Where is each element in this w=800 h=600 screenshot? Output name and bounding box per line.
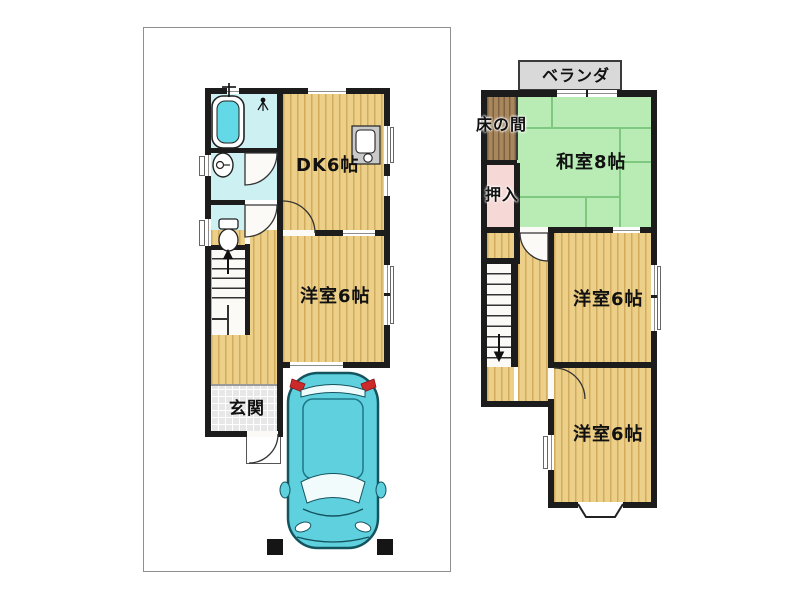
wall — [277, 93, 283, 437]
room-label-entrance: 玄関 — [229, 401, 265, 418]
window — [548, 435, 554, 470]
window — [308, 88, 346, 94]
tatami-line — [551, 97, 553, 127]
wall — [205, 200, 245, 205]
door-opening — [283, 230, 315, 236]
stair-line — [227, 305, 229, 335]
window — [227, 88, 239, 94]
floor-plan-canvas: DK6帖 洋室6帖 玄関 ベランダ 床の間 和室8帖 押入 洋室6帖 洋室6帖 — [0, 0, 800, 600]
room-label-western-2f-bottom: 洋室6帖 — [573, 426, 644, 444]
window — [384, 176, 390, 196]
entrance-porch — [246, 436, 281, 464]
bay-window — [578, 504, 623, 517]
wall — [554, 227, 657, 233]
gate-post — [267, 539, 283, 555]
wall — [375, 230, 390, 236]
wall — [205, 245, 250, 250]
wall — [481, 90, 487, 407]
window — [205, 219, 211, 246]
gate-post — [377, 539, 393, 555]
entrance-door-opening — [247, 431, 278, 437]
hallway-floor-2f — [518, 233, 548, 402]
window-sill — [199, 220, 205, 246]
wall — [514, 163, 520, 264]
tatami-line — [520, 196, 621, 198]
tatami-line — [520, 127, 651, 129]
wall — [205, 148, 280, 153]
toilet-door-opening — [245, 222, 250, 244]
washroom-floor — [211, 153, 277, 200]
room-label-western-1f: 洋室6帖 — [300, 288, 371, 306]
wall — [548, 362, 657, 368]
room-label-veranda: ベランダ — [542, 68, 610, 84]
room-label-dk: DK6帖 — [296, 157, 359, 175]
wall — [481, 401, 553, 407]
room-label-western-2f-middle: 洋室6帖 — [573, 291, 644, 309]
sliding-door — [343, 230, 375, 236]
tatami-line — [619, 127, 621, 227]
room-label-washitsu: 和室8帖 — [556, 154, 627, 172]
door-opening — [520, 227, 548, 233]
wall — [205, 431, 247, 437]
door-opening — [548, 368, 554, 399]
wall — [205, 88, 211, 437]
wall — [277, 362, 290, 368]
hallway-floor-2f — [487, 233, 514, 258]
room-label-tokonoma: 床の間 — [476, 117, 527, 133]
wall — [483, 227, 517, 233]
wall — [548, 502, 578, 508]
bathroom-floor — [211, 94, 277, 148]
wall — [278, 431, 283, 437]
wall — [486, 160, 517, 165]
wall — [315, 230, 343, 236]
window-mullion — [586, 90, 588, 97]
wall — [511, 264, 518, 367]
window-sill — [390, 266, 394, 324]
window-sill — [657, 266, 661, 330]
window-sill — [199, 156, 205, 176]
stair-line — [212, 318, 228, 320]
window — [205, 155, 211, 176]
window-mullion — [651, 295, 657, 298]
window — [290, 362, 343, 368]
wall — [245, 250, 250, 335]
wall — [623, 502, 657, 508]
wall — [343, 362, 390, 368]
staircase-2f — [487, 264, 511, 367]
window-sill — [390, 127, 394, 163]
entrance-step-line — [211, 384, 277, 386]
window-mullion — [384, 293, 390, 296]
sliding-door — [613, 227, 640, 233]
room-label-oshiire: 押入 — [485, 187, 519, 203]
tatami-line — [585, 196, 587, 227]
hallway-floor-2f — [487, 367, 514, 401]
window-sill — [543, 436, 548, 469]
